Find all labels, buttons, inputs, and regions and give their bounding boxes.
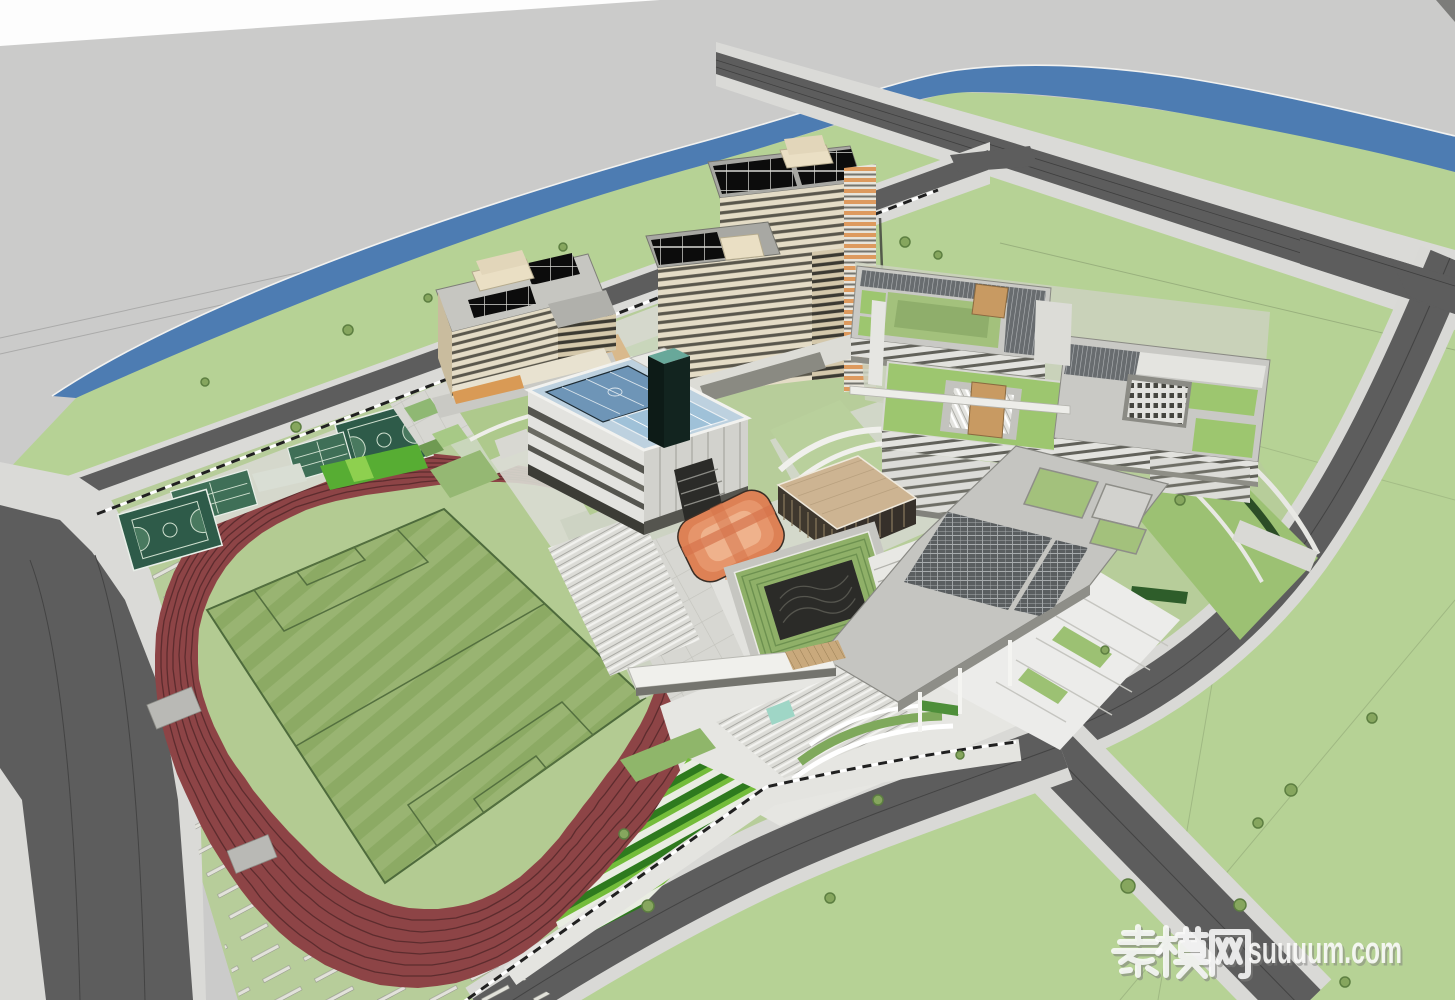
svg-text:suuuum.com: suuuum.com [1248,930,1402,972]
